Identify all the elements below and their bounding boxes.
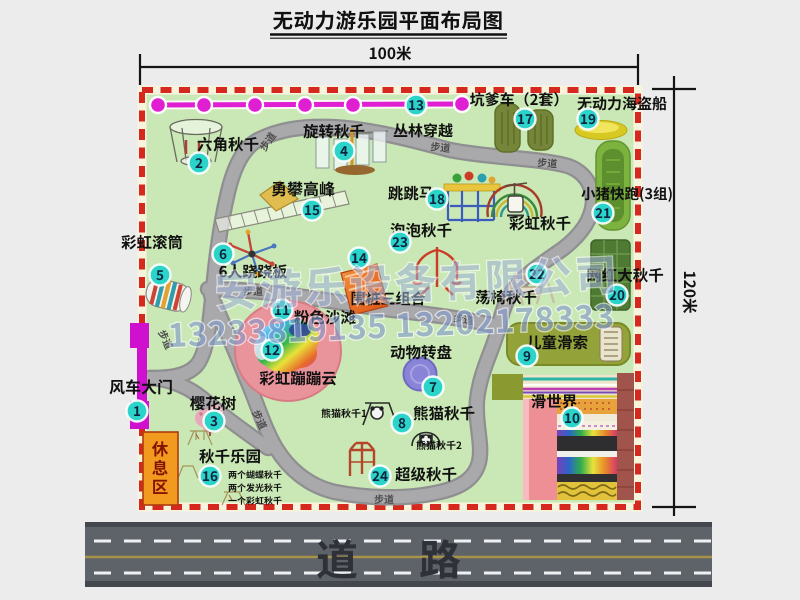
svg-text:路: 路 xyxy=(419,527,461,588)
svg-text:17: 17 xyxy=(517,108,533,128)
svg-text:两个蝴蝶秋千: 两个蝴蝶秋千 xyxy=(228,468,282,481)
svg-text:步道: 步道 xyxy=(537,154,558,170)
svg-text:熊猫秋千: 熊猫秋千 xyxy=(413,402,475,424)
svg-text:10: 10 xyxy=(564,407,580,427)
svg-text:道: 道 xyxy=(316,527,358,588)
svg-text:3: 3 xyxy=(210,410,218,430)
svg-text:7: 7 xyxy=(429,376,437,396)
svg-text:100米: 100米 xyxy=(369,42,412,64)
svg-text:23: 23 xyxy=(392,231,408,251)
svg-text:120米: 120米 xyxy=(679,271,701,314)
svg-text:2: 2 xyxy=(195,152,203,172)
svg-text:13: 13 xyxy=(408,94,424,114)
svg-text:18: 18 xyxy=(429,188,445,208)
svg-text:坑爹车（2套）: 坑爹车（2套） xyxy=(470,89,569,110)
svg-text:19: 19 xyxy=(580,108,596,128)
svg-text:两个发光秋千: 两个发光秋千 xyxy=(228,481,282,494)
svg-text:8: 8 xyxy=(398,412,406,432)
svg-text:彩虹蹦蹦云: 彩虹蹦蹦云 xyxy=(259,367,337,389)
svg-text:彩虹滚筒: 彩虹滚筒 xyxy=(121,231,183,253)
svg-text:熊猫秋千2: 熊猫秋千2 xyxy=(416,437,462,452)
svg-text:风车大门: 风车大门 xyxy=(109,374,173,398)
svg-text:彩虹秋千: 彩虹秋千 xyxy=(509,212,571,234)
svg-text:超级秋千: 超级秋千 xyxy=(395,463,457,485)
svg-text:熊猫秋千1: 熊猫秋千1 xyxy=(321,405,367,420)
svg-text:21: 21 xyxy=(595,202,611,222)
svg-text:一个彩虹秋千: 一个彩虹秋千 xyxy=(228,494,282,507)
svg-text:勇攀高峰: 勇攀高峰 xyxy=(271,176,335,200)
svg-text:旋转秋千: 旋转秋千 xyxy=(303,120,365,142)
svg-text:区: 区 xyxy=(152,474,169,498)
svg-text:无动力游乐园平面布局图: 无动力游乐园平面布局图 xyxy=(273,4,504,34)
svg-text:9: 9 xyxy=(523,345,531,365)
svg-text:4: 4 xyxy=(340,140,348,160)
svg-text:16: 16 xyxy=(202,465,218,485)
svg-text:小猪快跑(3组): 小猪快跑(3组) xyxy=(581,183,673,204)
svg-text:六角秋千: 六角秋千 xyxy=(197,133,259,155)
svg-text:步道: 步道 xyxy=(374,491,394,506)
svg-text:15: 15 xyxy=(304,199,320,219)
svg-text:秋千乐园: 秋千乐园 xyxy=(199,445,261,467)
svg-text:5: 5 xyxy=(156,264,164,284)
svg-text:24: 24 xyxy=(372,465,388,485)
svg-text:丛林穿越: 丛林穿越 xyxy=(393,120,453,141)
svg-text:1: 1 xyxy=(133,400,141,420)
